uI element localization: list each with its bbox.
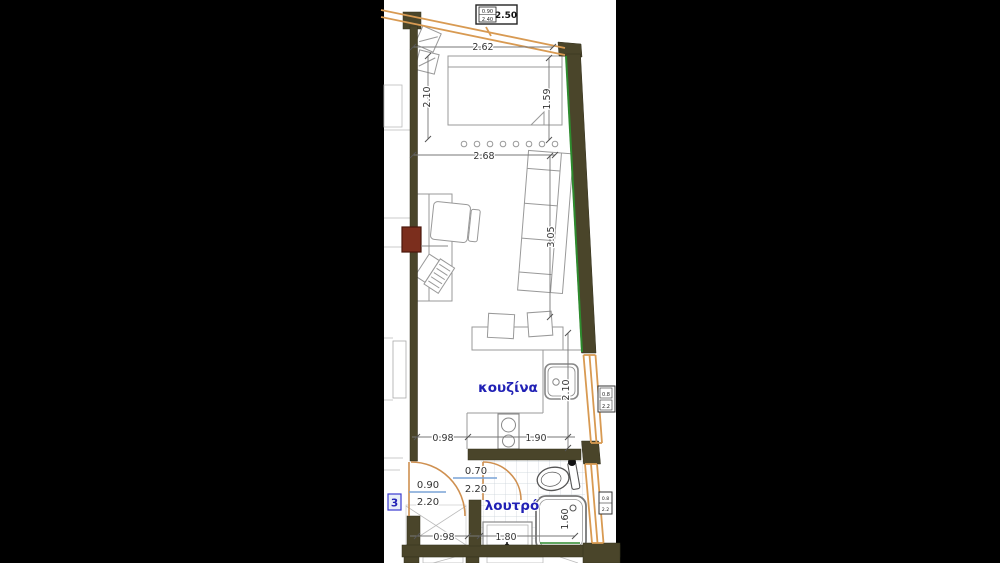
dim-living-length: 3.05 xyxy=(546,226,557,247)
floor-plan-screenshot: 2.62 2.10 1.59 2.68 3.05 2.10 0.98 1.90 … xyxy=(0,0,1000,563)
cooktop xyxy=(498,414,519,449)
bathroom-top-wall xyxy=(468,449,581,460)
room-number-badge: 3 xyxy=(388,494,401,510)
edge-tag-lower-line1: 0.8 xyxy=(602,496,609,502)
bathroom-left-wall xyxy=(469,500,481,546)
floor-plan-canvas: 2.62 2.10 1.59 2.68 3.05 2.10 0.98 1.90 … xyxy=(0,0,1000,563)
edge-tag-lower-line2: 2.2 xyxy=(602,507,609,513)
entrance-door-width: 0.90 xyxy=(417,480,439,491)
balcony-tag-line1: 0.90 xyxy=(482,9,493,15)
dim-bed-length: 1.59 xyxy=(542,88,553,109)
dim-hall-width: 0.98 xyxy=(433,532,454,543)
column-bottom-right xyxy=(583,543,620,563)
bathroom-door-width: 0.70 xyxy=(465,466,487,477)
dim-kitchen-run: 2.10 xyxy=(561,379,572,400)
bathroom-door-height: 2.20 xyxy=(465,484,487,495)
stool xyxy=(527,311,553,337)
dim-mid-width: 2.68 xyxy=(473,151,494,162)
room-number: 3 xyxy=(391,498,398,510)
balcony-tag-value: 2.50 xyxy=(495,11,517,21)
dim-bottom-right: 1.90 xyxy=(525,433,546,444)
dim-upper-room-height: 2.10 xyxy=(422,86,433,107)
balcony-tag-line2: 2.40 xyxy=(482,17,493,23)
dim-bottom-left: 0.98 xyxy=(432,433,453,444)
kitchen-label: κουζίνα xyxy=(478,380,538,396)
column-right-mid xyxy=(582,441,601,464)
balcony-window-tag: 0.90 2.40 2.50 xyxy=(476,5,517,24)
entrance-door-height: 2.20 xyxy=(417,497,439,508)
dim-shower-length: 1.60 xyxy=(560,508,571,529)
dim-bath-width: 1.80 xyxy=(495,532,516,543)
bathroom-label: λουτρό xyxy=(485,498,540,514)
edge-tag-upper: 0.8 2.2 xyxy=(598,386,615,412)
stool xyxy=(487,313,514,338)
edge-tag-lower: 0.8 2.2 xyxy=(599,492,612,514)
edge-tag-upper-line2: 2.2 xyxy=(602,404,610,410)
dim-top-width: 2.62 xyxy=(472,42,493,53)
edge-tag-upper-line1: 0.8 xyxy=(602,392,610,398)
